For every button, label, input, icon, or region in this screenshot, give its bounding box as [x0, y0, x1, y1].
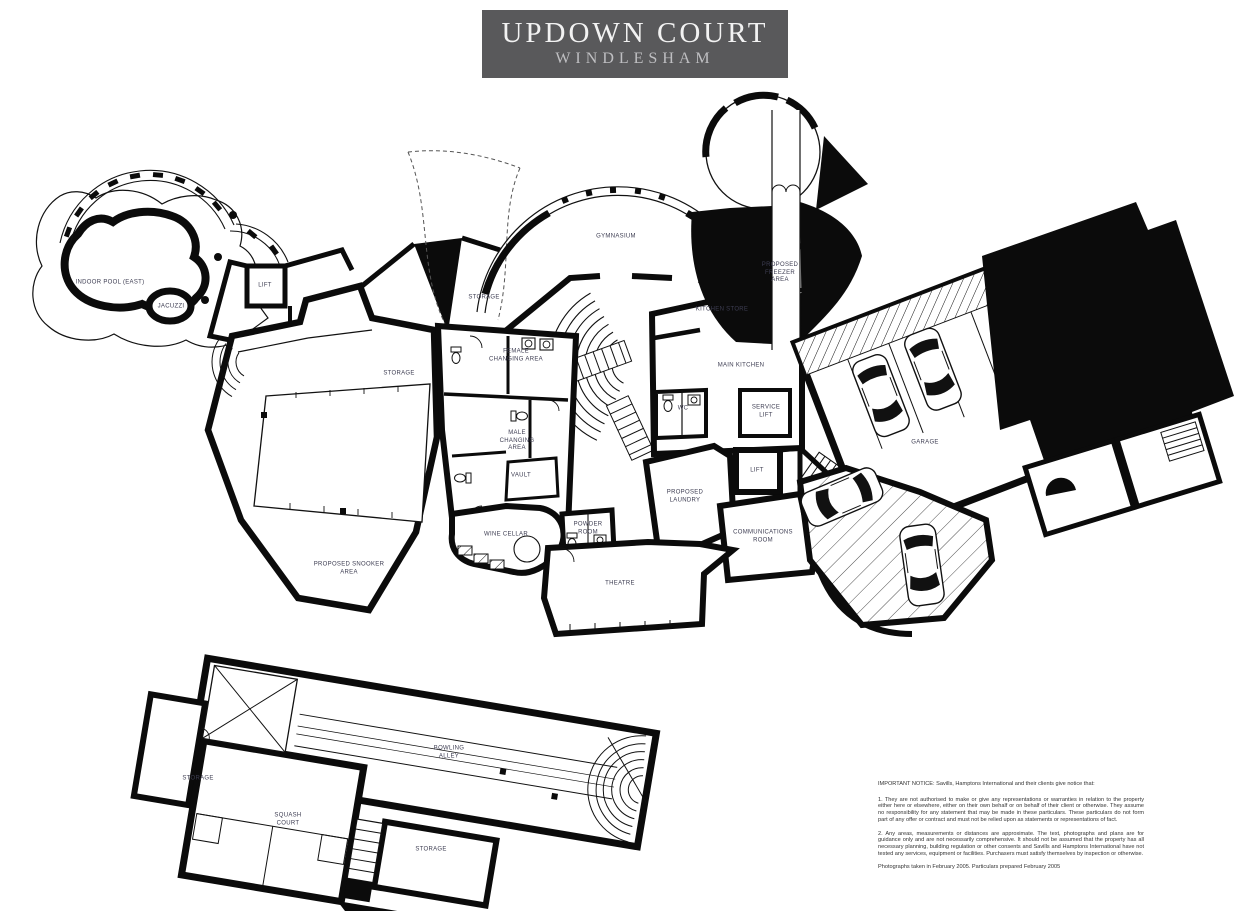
- pool-wing-drawing: [33, 170, 288, 347]
- room-label-proposed-freezer-area: PROPOSED FREEZER AREA: [759, 262, 801, 285]
- room-label-powder-room: POWDER ROOM: [570, 522, 606, 537]
- room-label-garage: GARAGE: [911, 439, 938, 447]
- room-label-storage-basement-right: STORAGE: [415, 846, 446, 854]
- room-label-wc: WC: [678, 405, 689, 413]
- property-location: WINDLESHAM: [482, 50, 788, 68]
- room-label-proposed-laundry: PROPOSED LAUNDRY: [661, 490, 709, 505]
- room-label-female-changing-area: FEMALE CHANGING AREA: [486, 349, 546, 364]
- property-title: UPDOWN COURT: [482, 10, 788, 50]
- room-label-communications-room: COMMUNICATIONS ROOM: [730, 530, 796, 545]
- room-label-vault: VAULT: [511, 472, 531, 480]
- room-label-jacuzzi: JACUZZI: [158, 303, 185, 311]
- room-label-indoor-pool-east: INDOOR POOL (EAST): [76, 279, 145, 287]
- room-label-proposed-snooker-area: PROPOSED SNOOKER AREA: [309, 562, 389, 577]
- room-label-male-changing-area: MALE CHANGING AREA: [496, 430, 538, 453]
- room-label-lift-pool: LIFT: [258, 282, 272, 290]
- room-label-kitchen-store: KITCHEN STORE: [696, 306, 748, 314]
- notice-paragraph-1: 1. They are not authorised to make or gi…: [878, 797, 1144, 824]
- poche-wedge: [414, 238, 462, 332]
- room-label-storage-basement-left: STORAGE: [182, 775, 213, 783]
- floorplan-page: UPDOWN COURT WINDLESHAM INDOOR POOL (EAS…: [0, 0, 1255, 911]
- room-label-theatre: THEATRE: [605, 580, 635, 588]
- room-label-storage-upper: STORAGE: [468, 294, 499, 302]
- room-label-service-lift: SERVICE LIFT: [749, 405, 783, 420]
- notice-paragraph-2: 2. Any areas, measurements or distances …: [878, 831, 1144, 858]
- stair-flight-lower: [606, 396, 653, 461]
- room-label-wine-cellar: WINE CELLAR: [484, 531, 528, 539]
- room-label-gymnasium: GYMNASIUM: [596, 233, 636, 241]
- room-label-main-kitchen: MAIN KITCHEN: [718, 362, 765, 370]
- room-label-storage-mid: STORAGE: [383, 370, 414, 378]
- theatre-drawing: [544, 542, 733, 634]
- title-block: UPDOWN COURT WINDLESHAM: [482, 10, 788, 78]
- notice-footer: Photographs taken in February 2005. Part…: [878, 864, 1144, 871]
- room-label-squash-court: SQUASH COURT: [269, 813, 307, 828]
- important-notice: IMPORTANT NOTICE: Savills, Hamptons Inte…: [878, 781, 1144, 871]
- notice-heading: IMPORTANT NOTICE: Savills, Hamptons Inte…: [878, 781, 1144, 788]
- room-label-bowling-alley: BOWLING ALLEY: [429, 746, 469, 761]
- room-label-lift-east: LIFT: [750, 467, 764, 475]
